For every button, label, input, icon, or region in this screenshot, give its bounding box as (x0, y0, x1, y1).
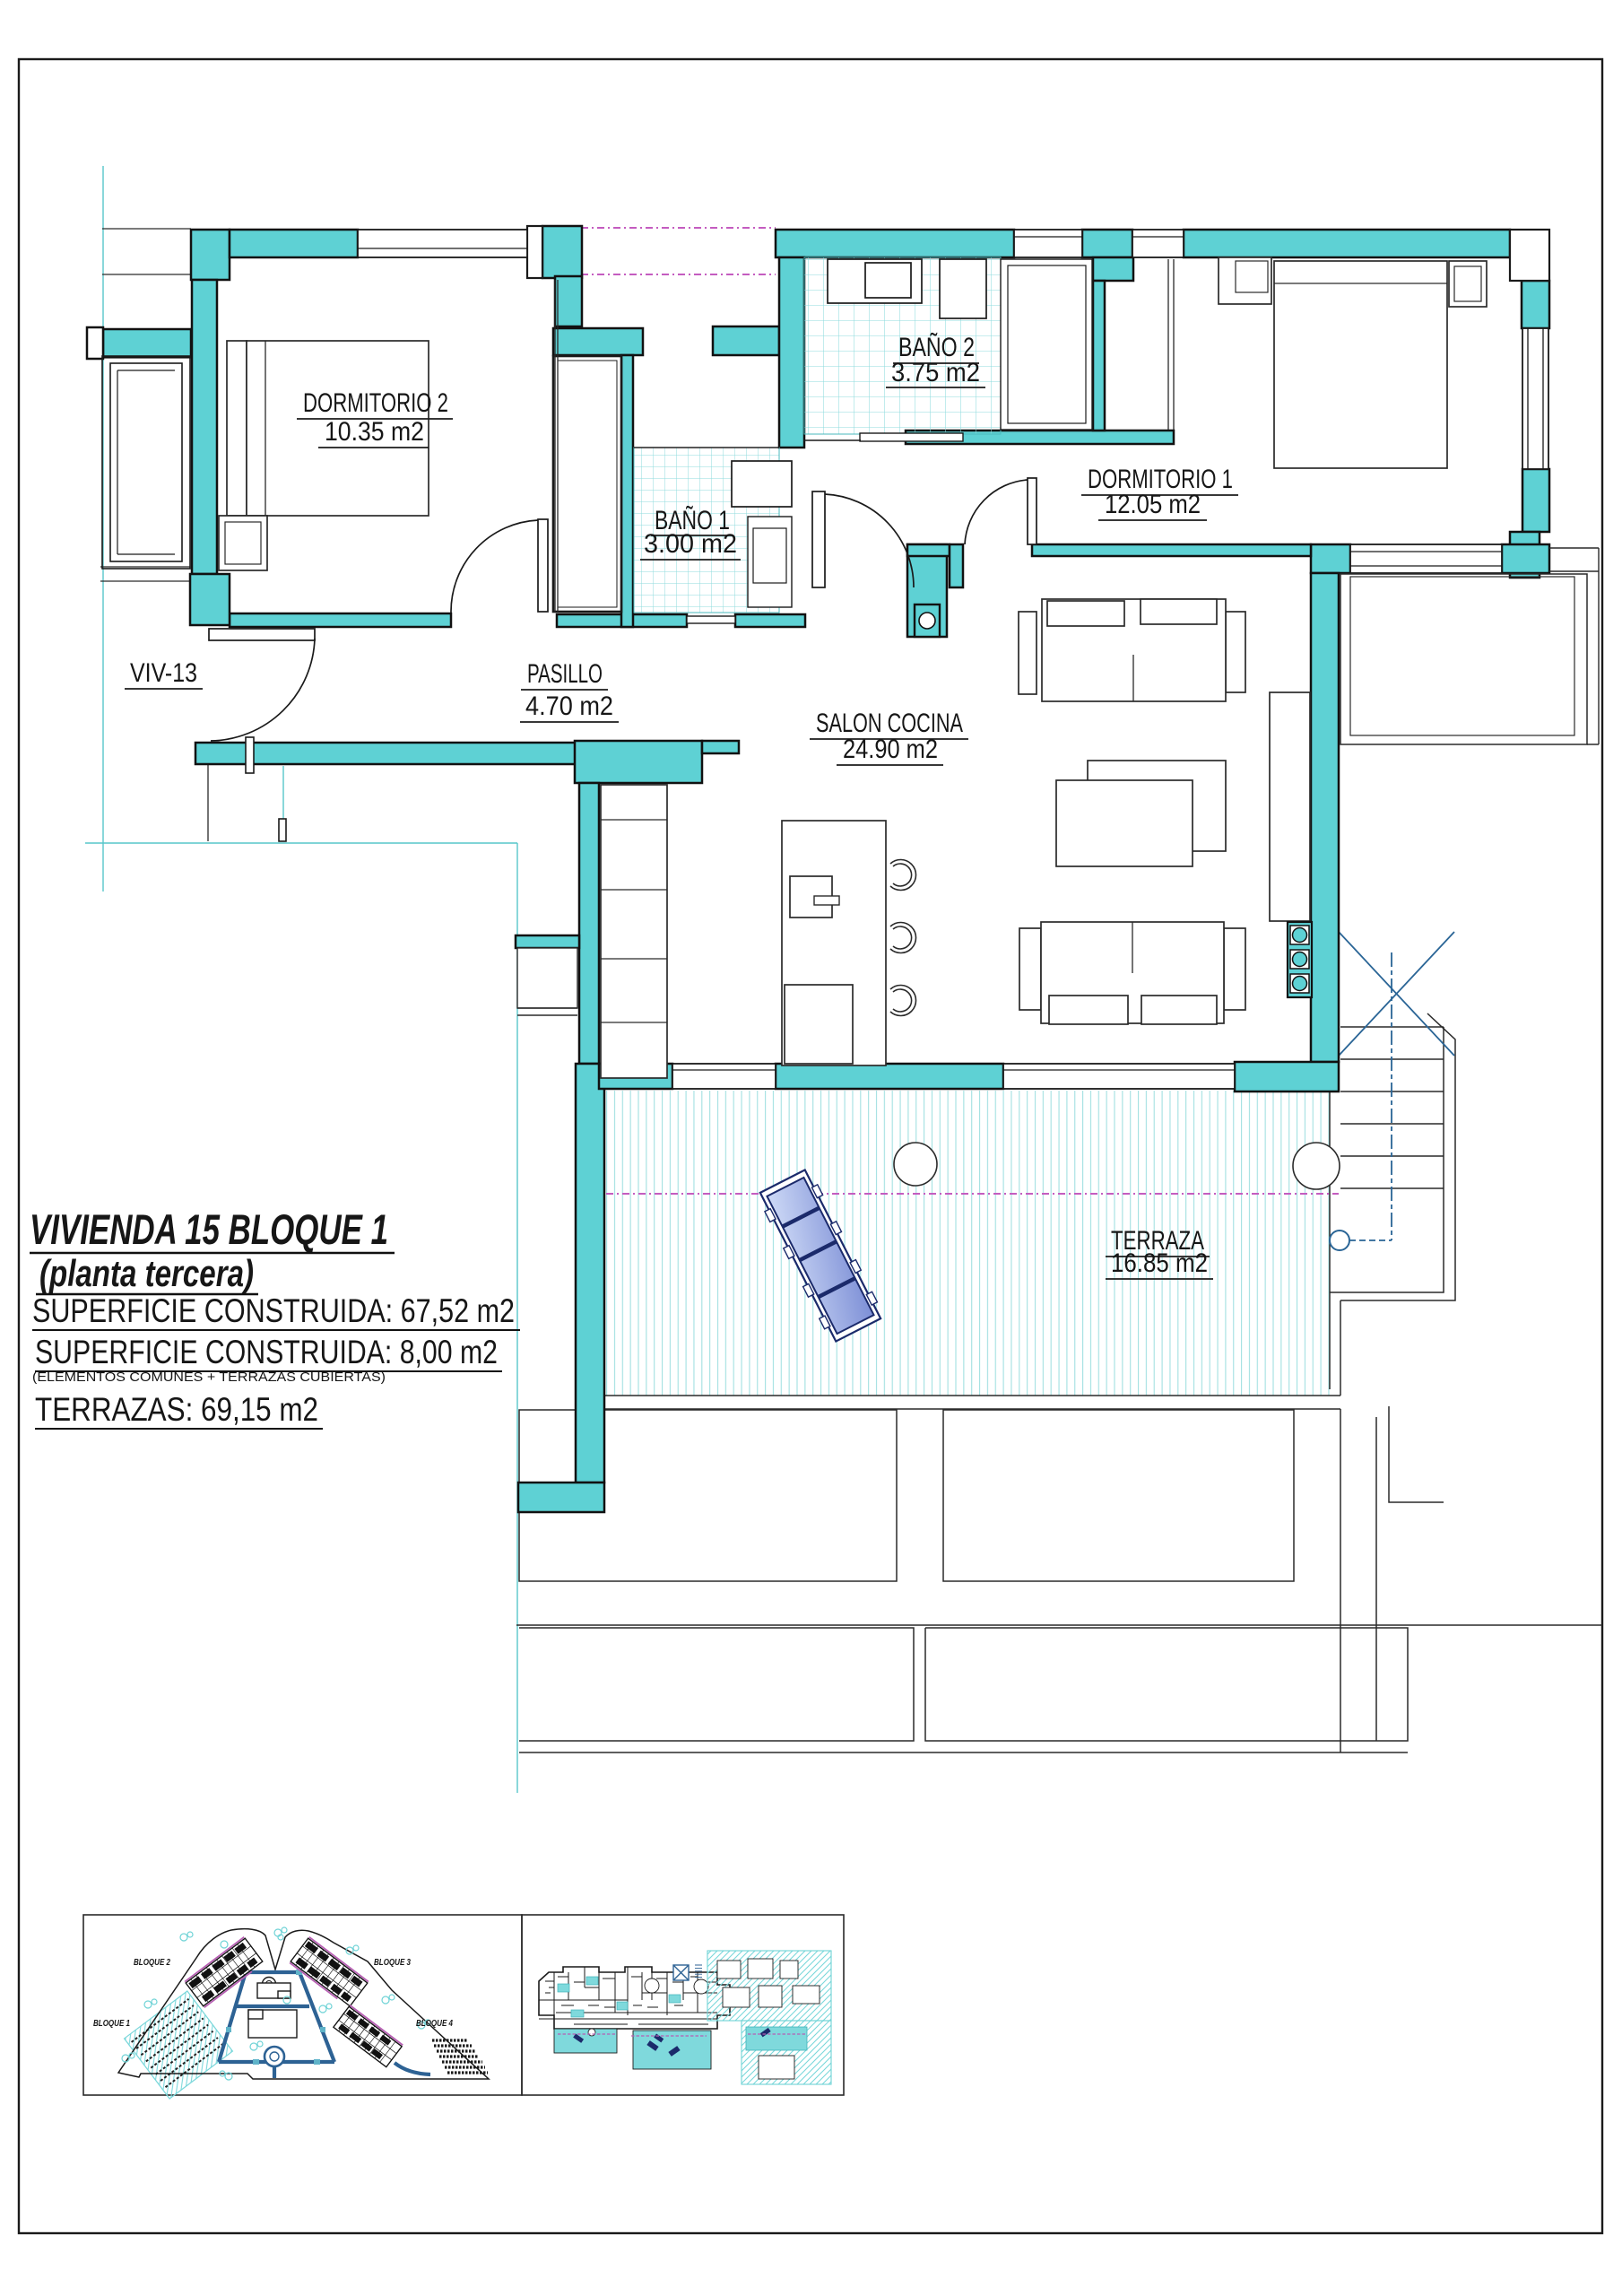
svg-text:4.70 m2: 4.70 m2 (525, 691, 613, 721)
svg-text:3.75 m2: 3.75 m2 (891, 358, 980, 387)
svg-text:SUPERFICIE CONSTRUIDA: 67,52 m: SUPERFICIE CONSTRUIDA: 67,52 m2 (32, 1292, 515, 1329)
svg-text:PASILLO: PASILLO (527, 659, 603, 689)
svg-text:12.05 m2: 12.05 m2 (1105, 490, 1201, 519)
svg-text:BLOQUE 3: BLOQUE 3 (374, 1957, 411, 1968)
svg-text:3.00 m2: 3.00 m2 (644, 529, 737, 559)
svg-text:BLOQUE 4: BLOQUE 4 (416, 2018, 453, 2029)
svg-text:BLOQUE 2: BLOQUE 2 (134, 1957, 170, 1968)
svg-text:VIV-13: VIV-13 (130, 658, 197, 688)
svg-text:24.90 m2: 24.90 m2 (843, 735, 938, 764)
svg-text:10.35 m2: 10.35 m2 (325, 417, 424, 447)
svg-text:VIVIENDA 15 BLOQUE 1: VIVIENDA 15 BLOQUE 1 (30, 1205, 388, 1253)
svg-text:TERRAZAS: 69,15 m2: TERRAZAS: 69,15 m2 (35, 1391, 318, 1428)
svg-text:BLOQUE 1: BLOQUE 1 (93, 2018, 130, 2029)
svg-text:(ELEMENTOS COMUNES + TERRAZAS: (ELEMENTOS COMUNES + TERRAZAS CUBIERTAS) (32, 1370, 386, 1385)
svg-text:SUPERFICIE CONSTRUIDA: 8,00 m2: SUPERFICIE CONSTRUIDA: 8,00 m2 (35, 1334, 498, 1370)
svg-text:DORMITORIO 2: DORMITORIO 2 (303, 388, 448, 418)
svg-text:16.85 m2: 16.85 m2 (1111, 1248, 1208, 1278)
svg-text:(planta tercera): (planta tercera) (39, 1252, 254, 1294)
